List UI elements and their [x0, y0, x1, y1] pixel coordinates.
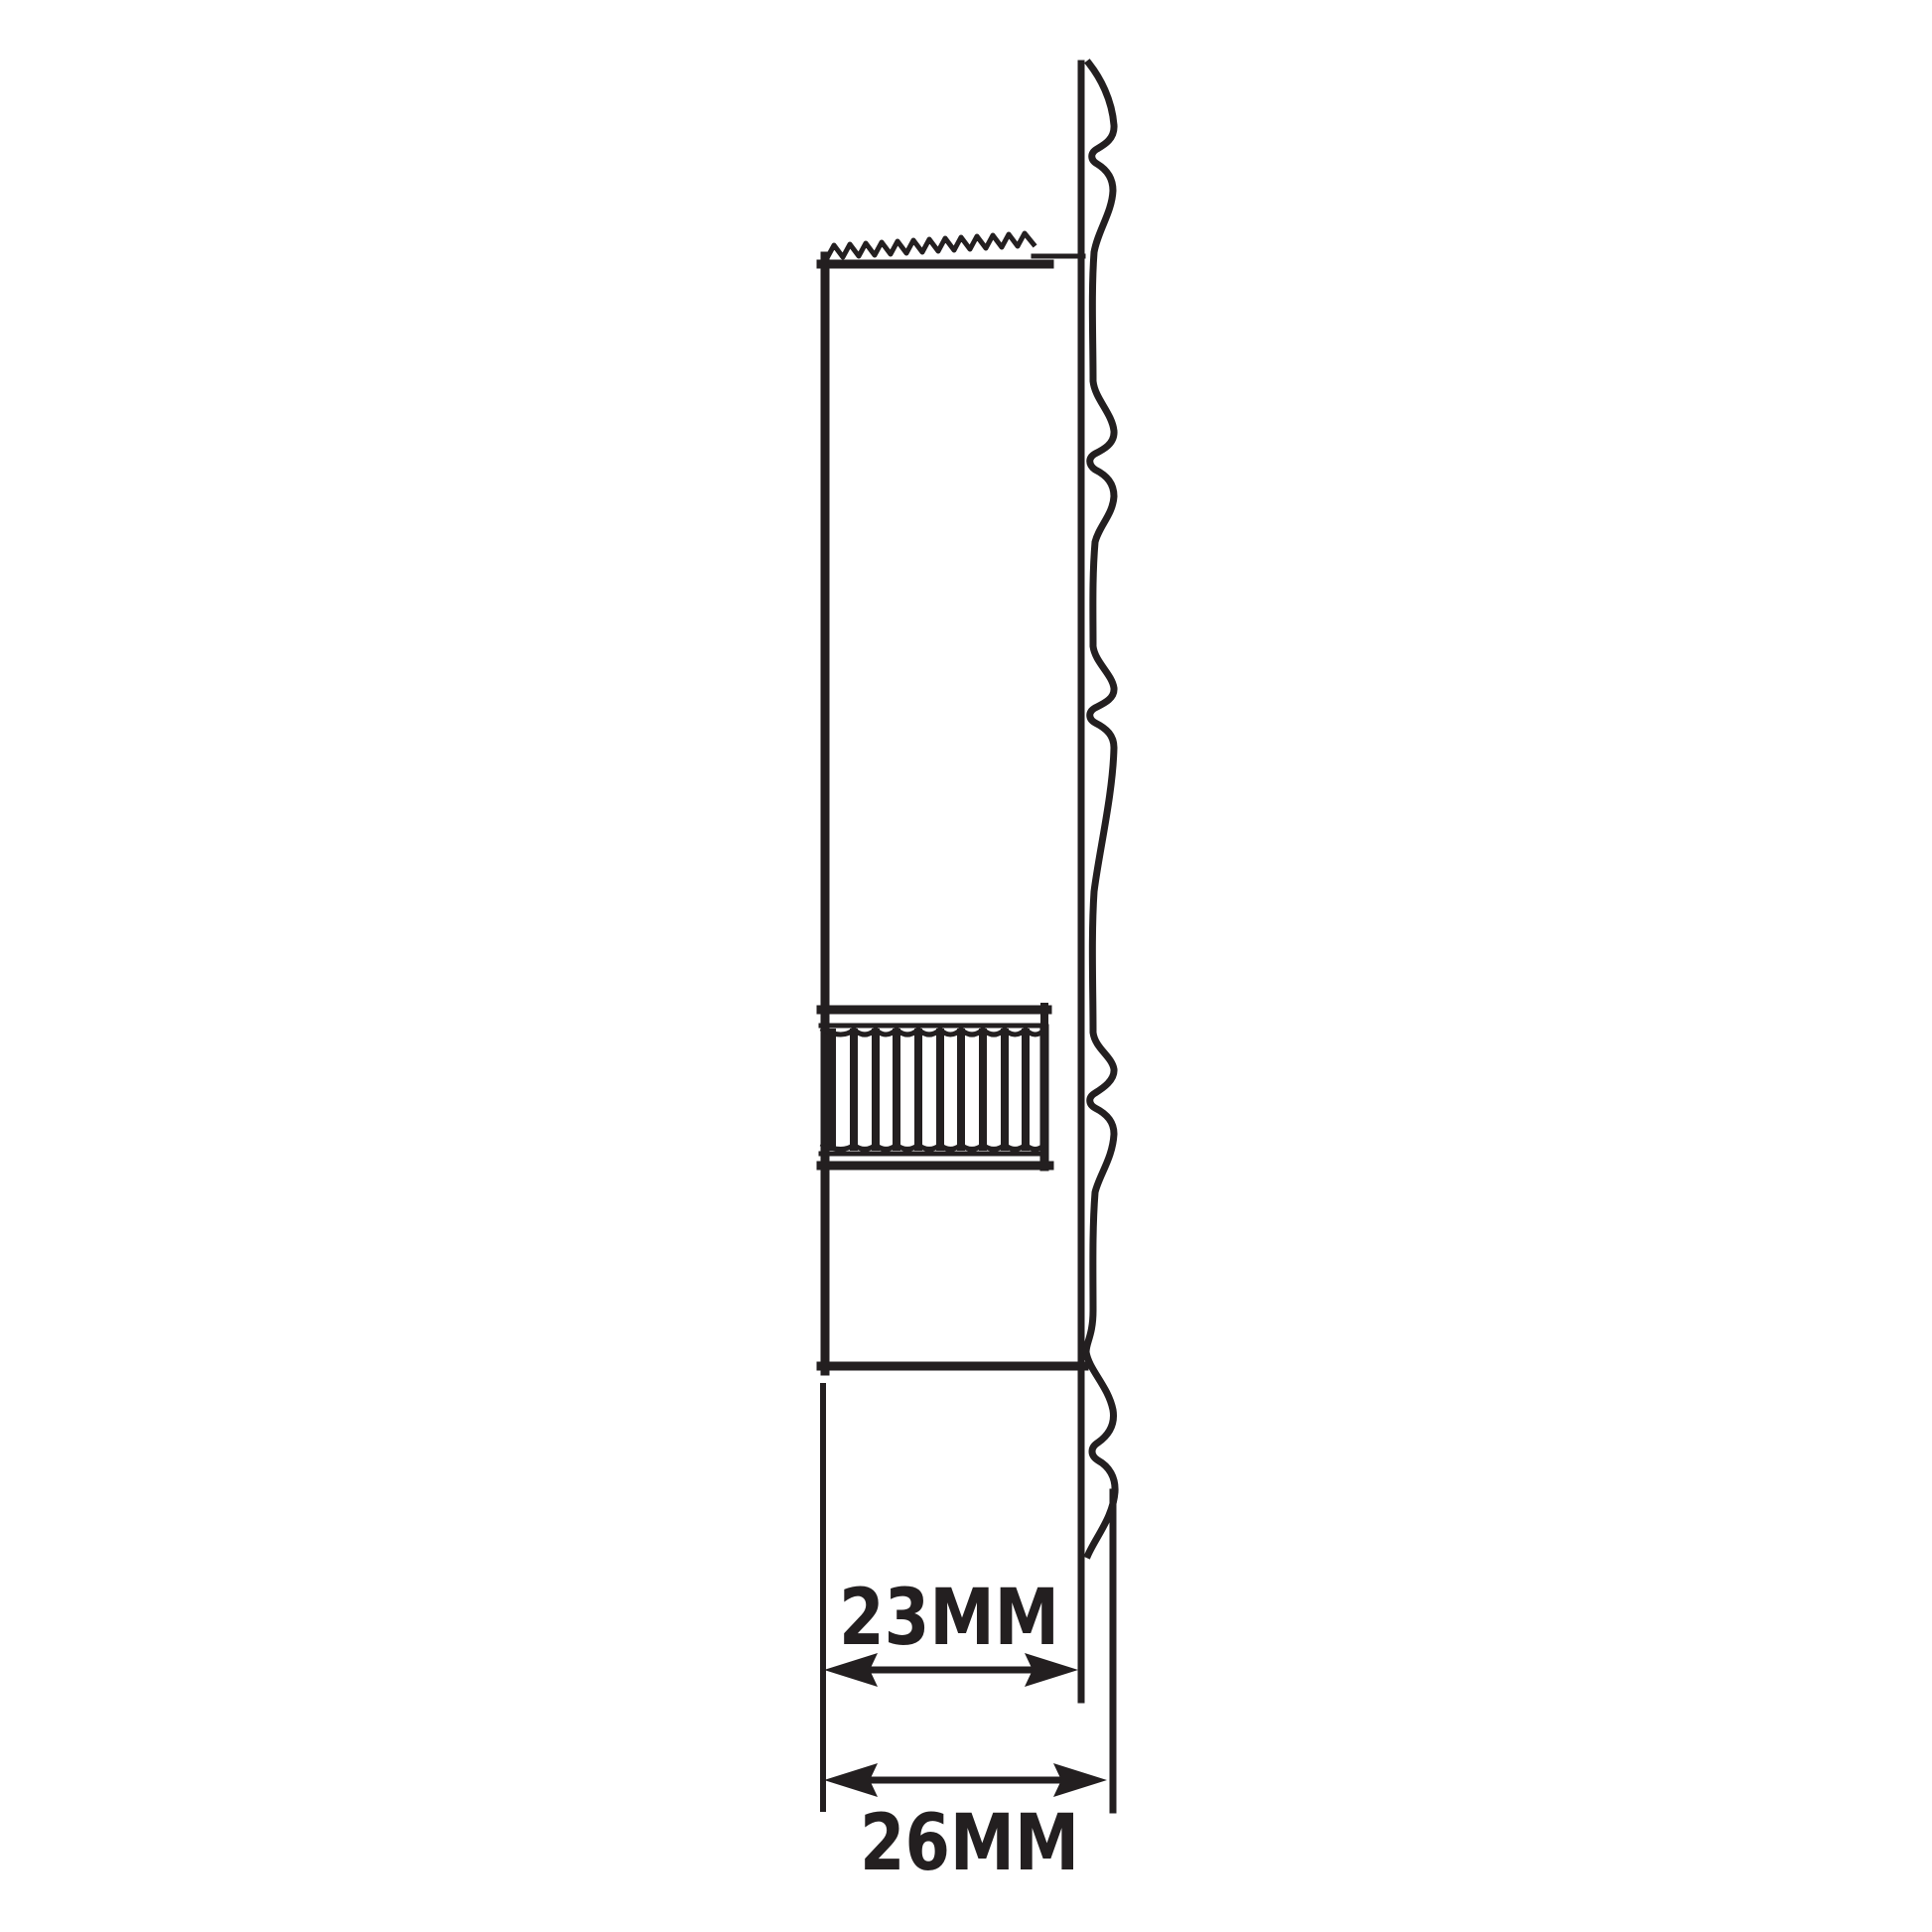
thread-ribs — [832, 1033, 1026, 1147]
dim-label-26mm: 26MM — [860, 1799, 1079, 1888]
arrowhead-left — [824, 1763, 878, 1797]
thread-band-top-flange — [821, 1007, 1047, 1027]
break-wavy-line — [1086, 64, 1115, 1555]
neck-body-outline — [821, 233, 1084, 1371]
dimension-26mm: 26MM — [824, 1763, 1107, 1888]
dimension-callouts: 23MM 26MM — [823, 1383, 1107, 1888]
dimension-23mm: 23MM — [824, 1574, 1078, 1687]
serrated-top-edge — [827, 233, 1034, 258]
wall-and-break-lines — [1081, 64, 1115, 1810]
neck-finish-cross-section-diagram: 23MM 26MM — [0, 0, 1932, 1932]
technical-drawing-page: 23MM 26MM — [0, 0, 1932, 1932]
dim-label-23mm: 23MM — [839, 1574, 1059, 1663]
thread-band-bottom-flange — [821, 1154, 1049, 1166]
arrowhead-right — [1053, 1763, 1107, 1797]
rib-bottom-scallops — [823, 1145, 1044, 1150]
thread-band — [821, 1007, 1049, 1167]
